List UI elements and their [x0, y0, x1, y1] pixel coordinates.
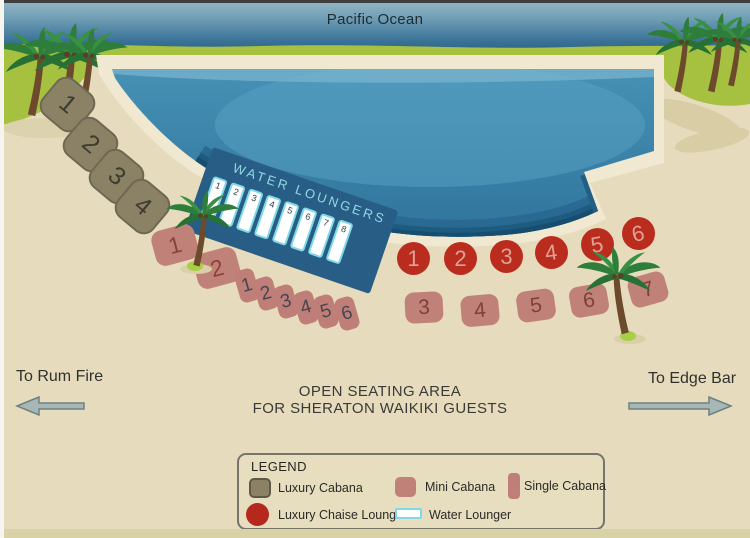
palm-tree-mid-right [577, 247, 661, 334]
mini-cabana-swatch [395, 477, 416, 497]
legend-label-mini-cabana: Mini Cabana [425, 480, 495, 494]
legend: LEGEND Luxury Cabana Mini Cabana Single … [237, 453, 605, 530]
legend-label-luxury-cabana: Luxury Cabana [278, 481, 363, 495]
chaise-lounge-swatch [246, 503, 269, 526]
palm-tree-mid-left [166, 191, 239, 267]
pool-map: Pacific Ocean [0, 0, 750, 538]
left-border [0, 0, 4, 538]
single-cabana-swatch [508, 473, 520, 499]
water-lounger-swatch [395, 508, 422, 519]
legend-label-water-lounger: Water Lounger [429, 508, 511, 522]
top-border [0, 0, 750, 3]
legend-label-chaise-lounge: Luxury Chaise Lounge [278, 508, 403, 522]
legend-label-single-cabana: Single Cabana [524, 479, 606, 493]
legend-title: LEGEND [251, 459, 307, 474]
bottom-strip [0, 529, 750, 538]
luxury-cabana-swatch [249, 478, 271, 498]
